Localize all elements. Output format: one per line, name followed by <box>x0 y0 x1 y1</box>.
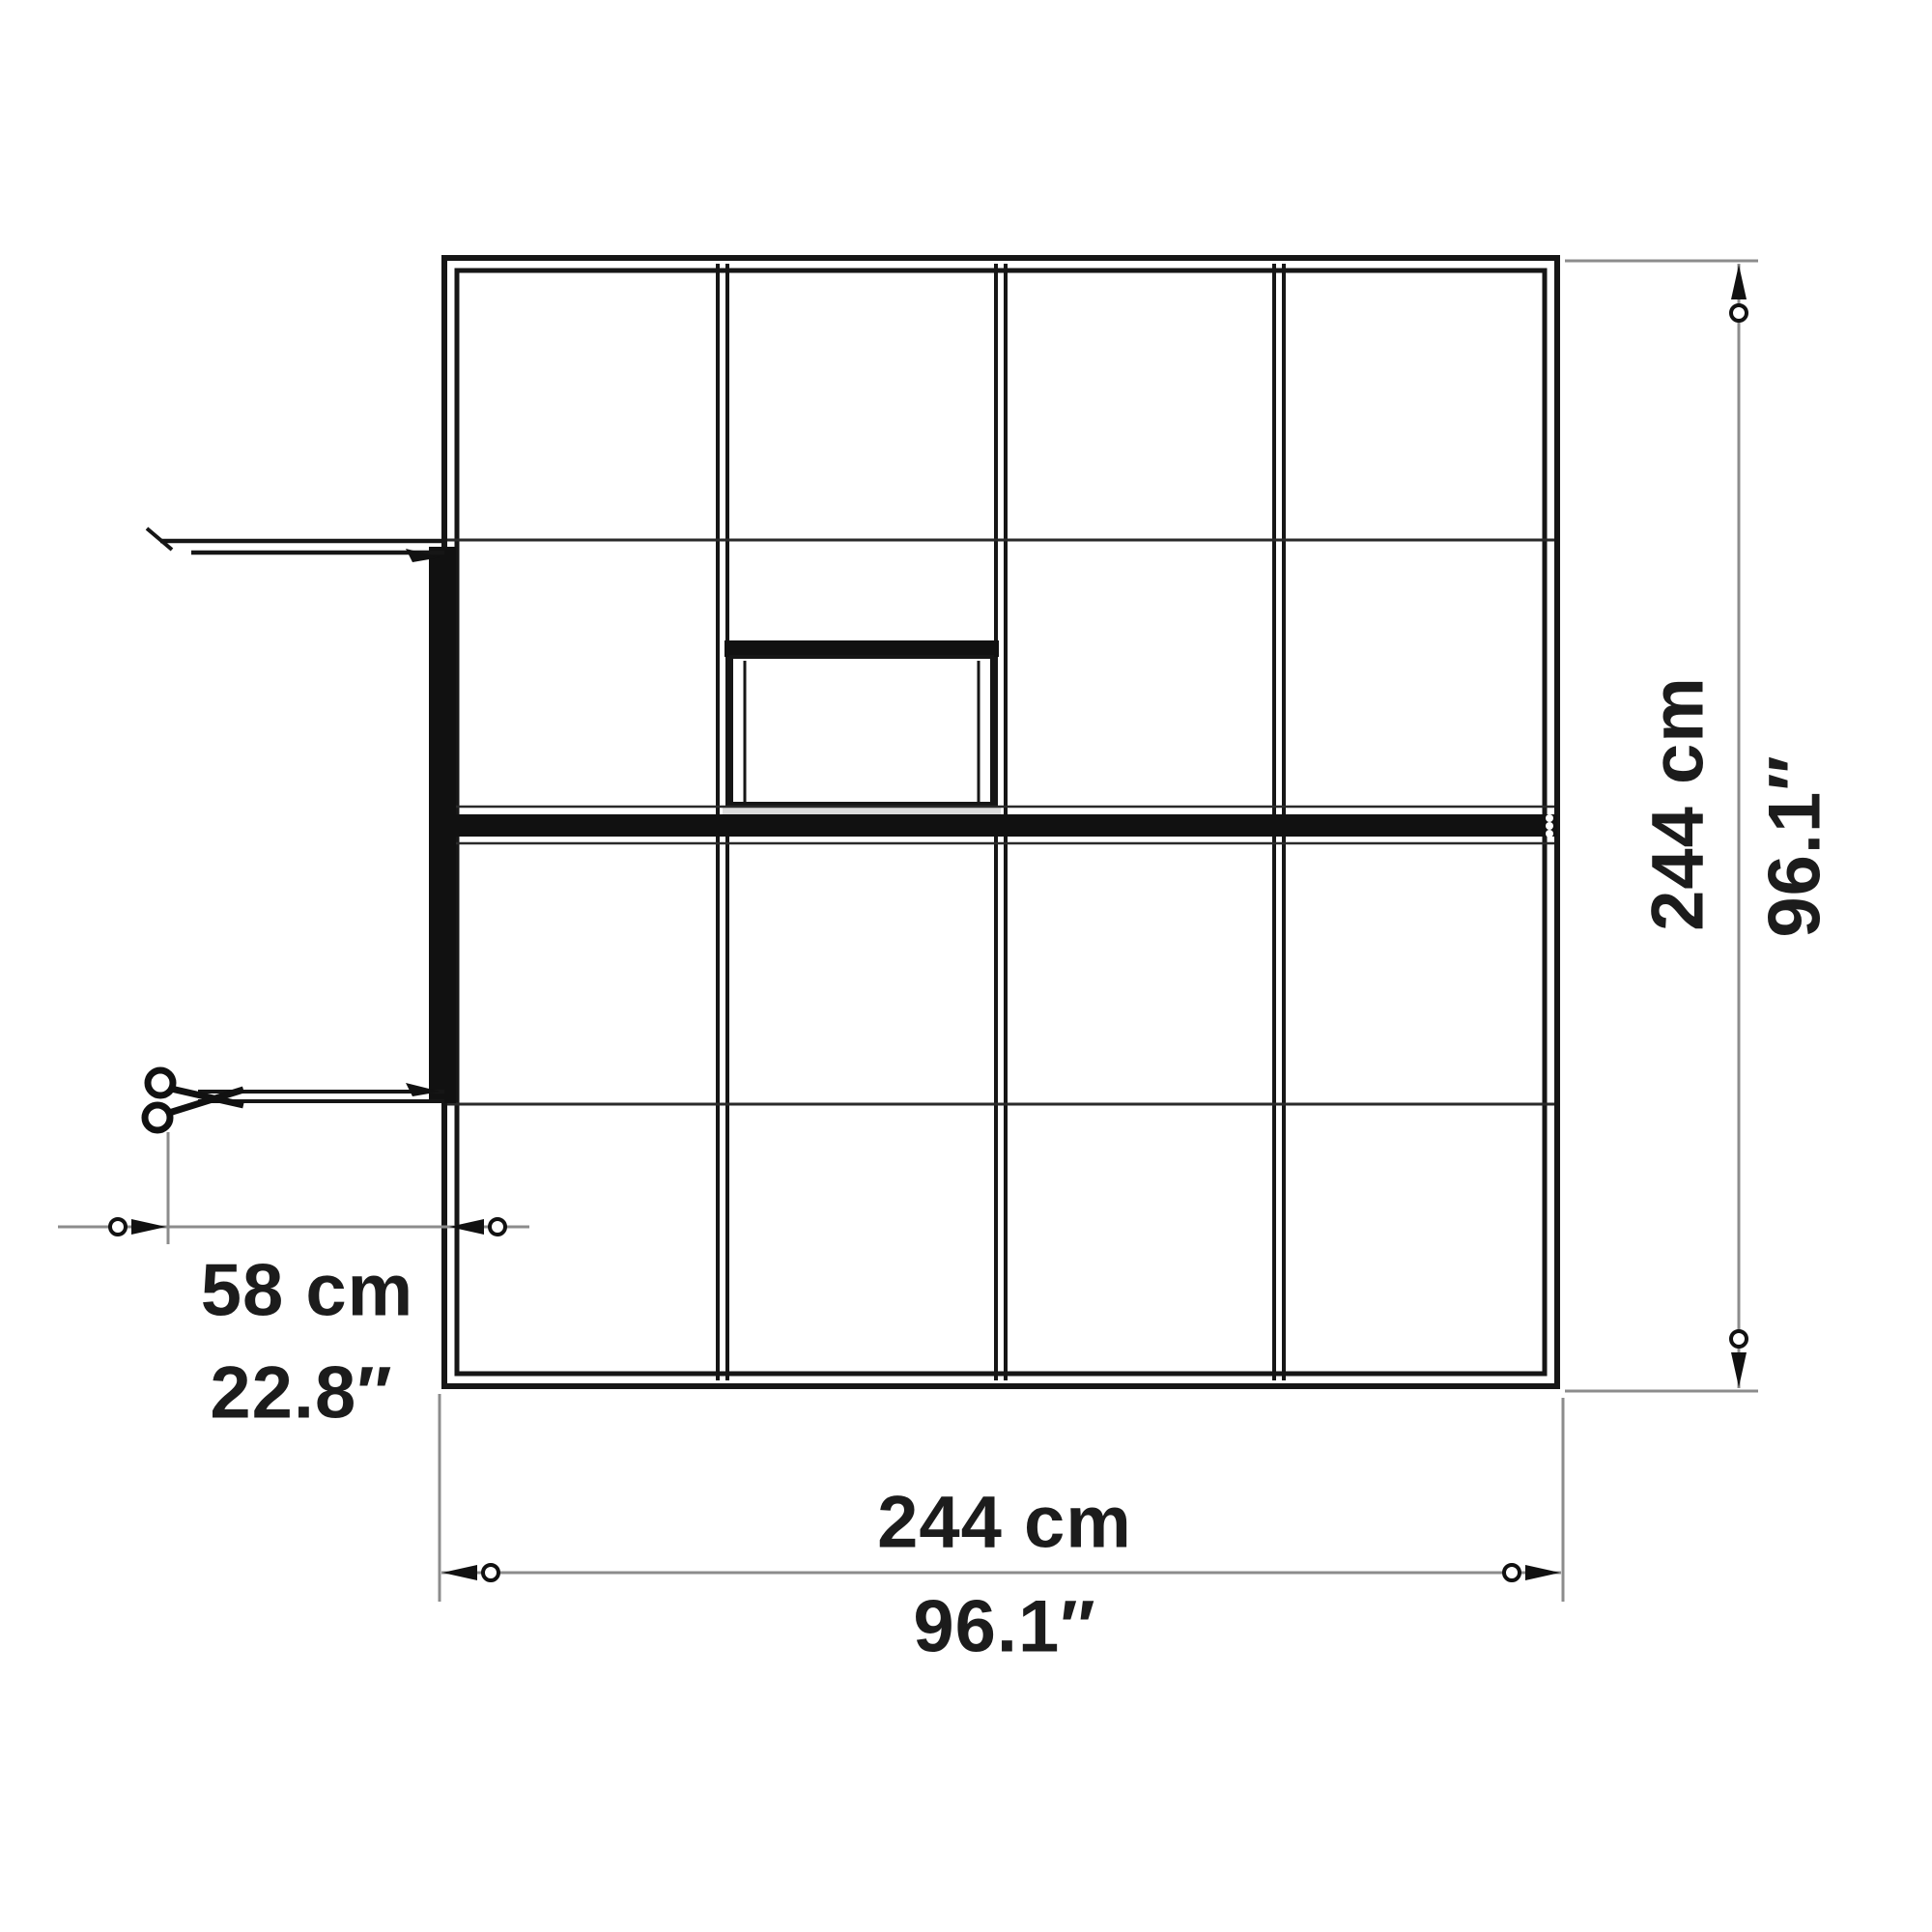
arrow-tail-circle <box>490 1219 505 1235</box>
right-dimension-imperial: 96.1″ <box>1754 754 1836 937</box>
greenhouse-plan-drawing: 244 cm 96.1″ 244 cm 96.1″ 58 cm 22.8″ <box>0 0 1932 1932</box>
ridge-right-joint <box>1546 814 1553 838</box>
plan-canvas: 244 cm 96.1″ 244 cm 96.1″ 58 cm 22.8″ <box>0 0 1932 1932</box>
arrow-tail-circle <box>483 1565 498 1580</box>
door-offset-imperial: 22.8″ <box>210 1352 392 1435</box>
left-wall-thick-segment <box>429 547 456 1103</box>
right-dimension-metric: 244 cm <box>1637 676 1719 931</box>
vent-top-bar <box>724 640 999 657</box>
arrow-tail-circle <box>1504 1565 1520 1580</box>
bottom-dimension-metric: 244 cm <box>877 1482 1132 1564</box>
arrow-tail-circle <box>110 1219 126 1235</box>
arrow-tail-circle <box>1731 1331 1747 1347</box>
door-offset-metric: 58 cm <box>201 1250 414 1332</box>
bottom-dimension-imperial: 96.1″ <box>913 1586 1095 1668</box>
arrow-tail-circle <box>1731 305 1747 321</box>
ridge-bar <box>444 814 1557 837</box>
